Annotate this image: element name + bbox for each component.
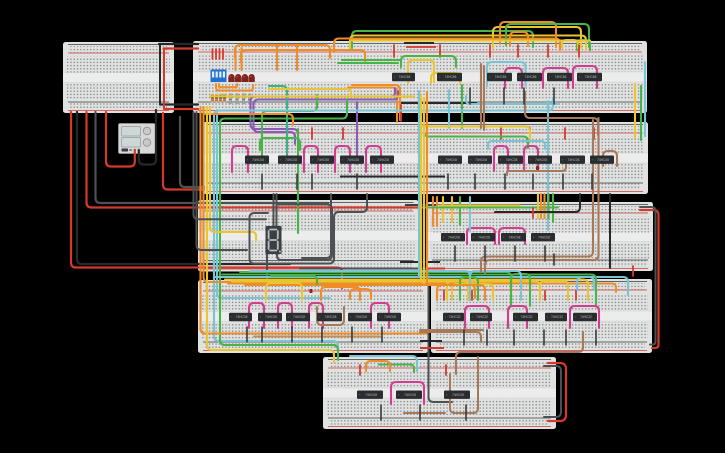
svg-text:74HC86: 74HC86 xyxy=(555,75,567,79)
svg-text:74HC08: 74HC08 xyxy=(325,315,337,319)
svg-text:74HC08: 74HC08 xyxy=(252,158,264,162)
svg-text:74HC08: 74HC08 xyxy=(452,393,464,397)
svg-text:74HC08: 74HC08 xyxy=(506,158,518,162)
svg-text:74HC32: 74HC32 xyxy=(580,315,592,319)
svg-text:74HC08: 74HC08 xyxy=(384,315,396,319)
svg-text:74HC08: 74HC08 xyxy=(535,158,547,162)
svg-text:74HC08: 74HC08 xyxy=(448,235,460,239)
svg-text:74HC86: 74HC86 xyxy=(585,75,597,79)
svg-text:74HC08: 74HC08 xyxy=(445,158,457,162)
svg-text:74HC08: 74HC08 xyxy=(236,315,248,319)
svg-text:74HC08: 74HC08 xyxy=(347,158,359,162)
svg-text:74HC08: 74HC08 xyxy=(285,158,297,162)
svg-text:74HC08: 74HC08 xyxy=(538,235,550,239)
svg-text:74HC08: 74HC08 xyxy=(317,158,329,162)
svg-text:74HC08: 74HC08 xyxy=(377,158,389,162)
svg-text:74HC08: 74HC08 xyxy=(597,158,609,162)
svg-text:74HC86: 74HC86 xyxy=(495,75,507,79)
svg-text:74HC32: 74HC32 xyxy=(476,315,488,319)
svg-text:74HC32: 74HC32 xyxy=(449,315,461,319)
svg-text:74HC32: 74HC32 xyxy=(521,315,533,319)
svg-text:74HC08: 74HC08 xyxy=(568,158,580,162)
svg-text:74HC08: 74HC08 xyxy=(365,393,377,397)
svg-text:74HC86: 74HC86 xyxy=(525,75,537,79)
svg-text:74HC08: 74HC08 xyxy=(475,158,487,162)
svg-text:74HC08: 74HC08 xyxy=(265,315,277,319)
svg-text:74HC08: 74HC08 xyxy=(404,393,416,397)
svg-text:74HC08: 74HC08 xyxy=(355,315,367,319)
svg-text:74HC08: 74HC08 xyxy=(509,235,521,239)
svg-text:74HC08: 74HC08 xyxy=(293,315,305,319)
svg-text:74HC32: 74HC32 xyxy=(551,315,563,319)
svg-text:74HC86: 74HC86 xyxy=(445,75,457,79)
svg-text:74HC86: 74HC86 xyxy=(399,75,411,79)
svg-text:74HC08: 74HC08 xyxy=(478,235,490,239)
